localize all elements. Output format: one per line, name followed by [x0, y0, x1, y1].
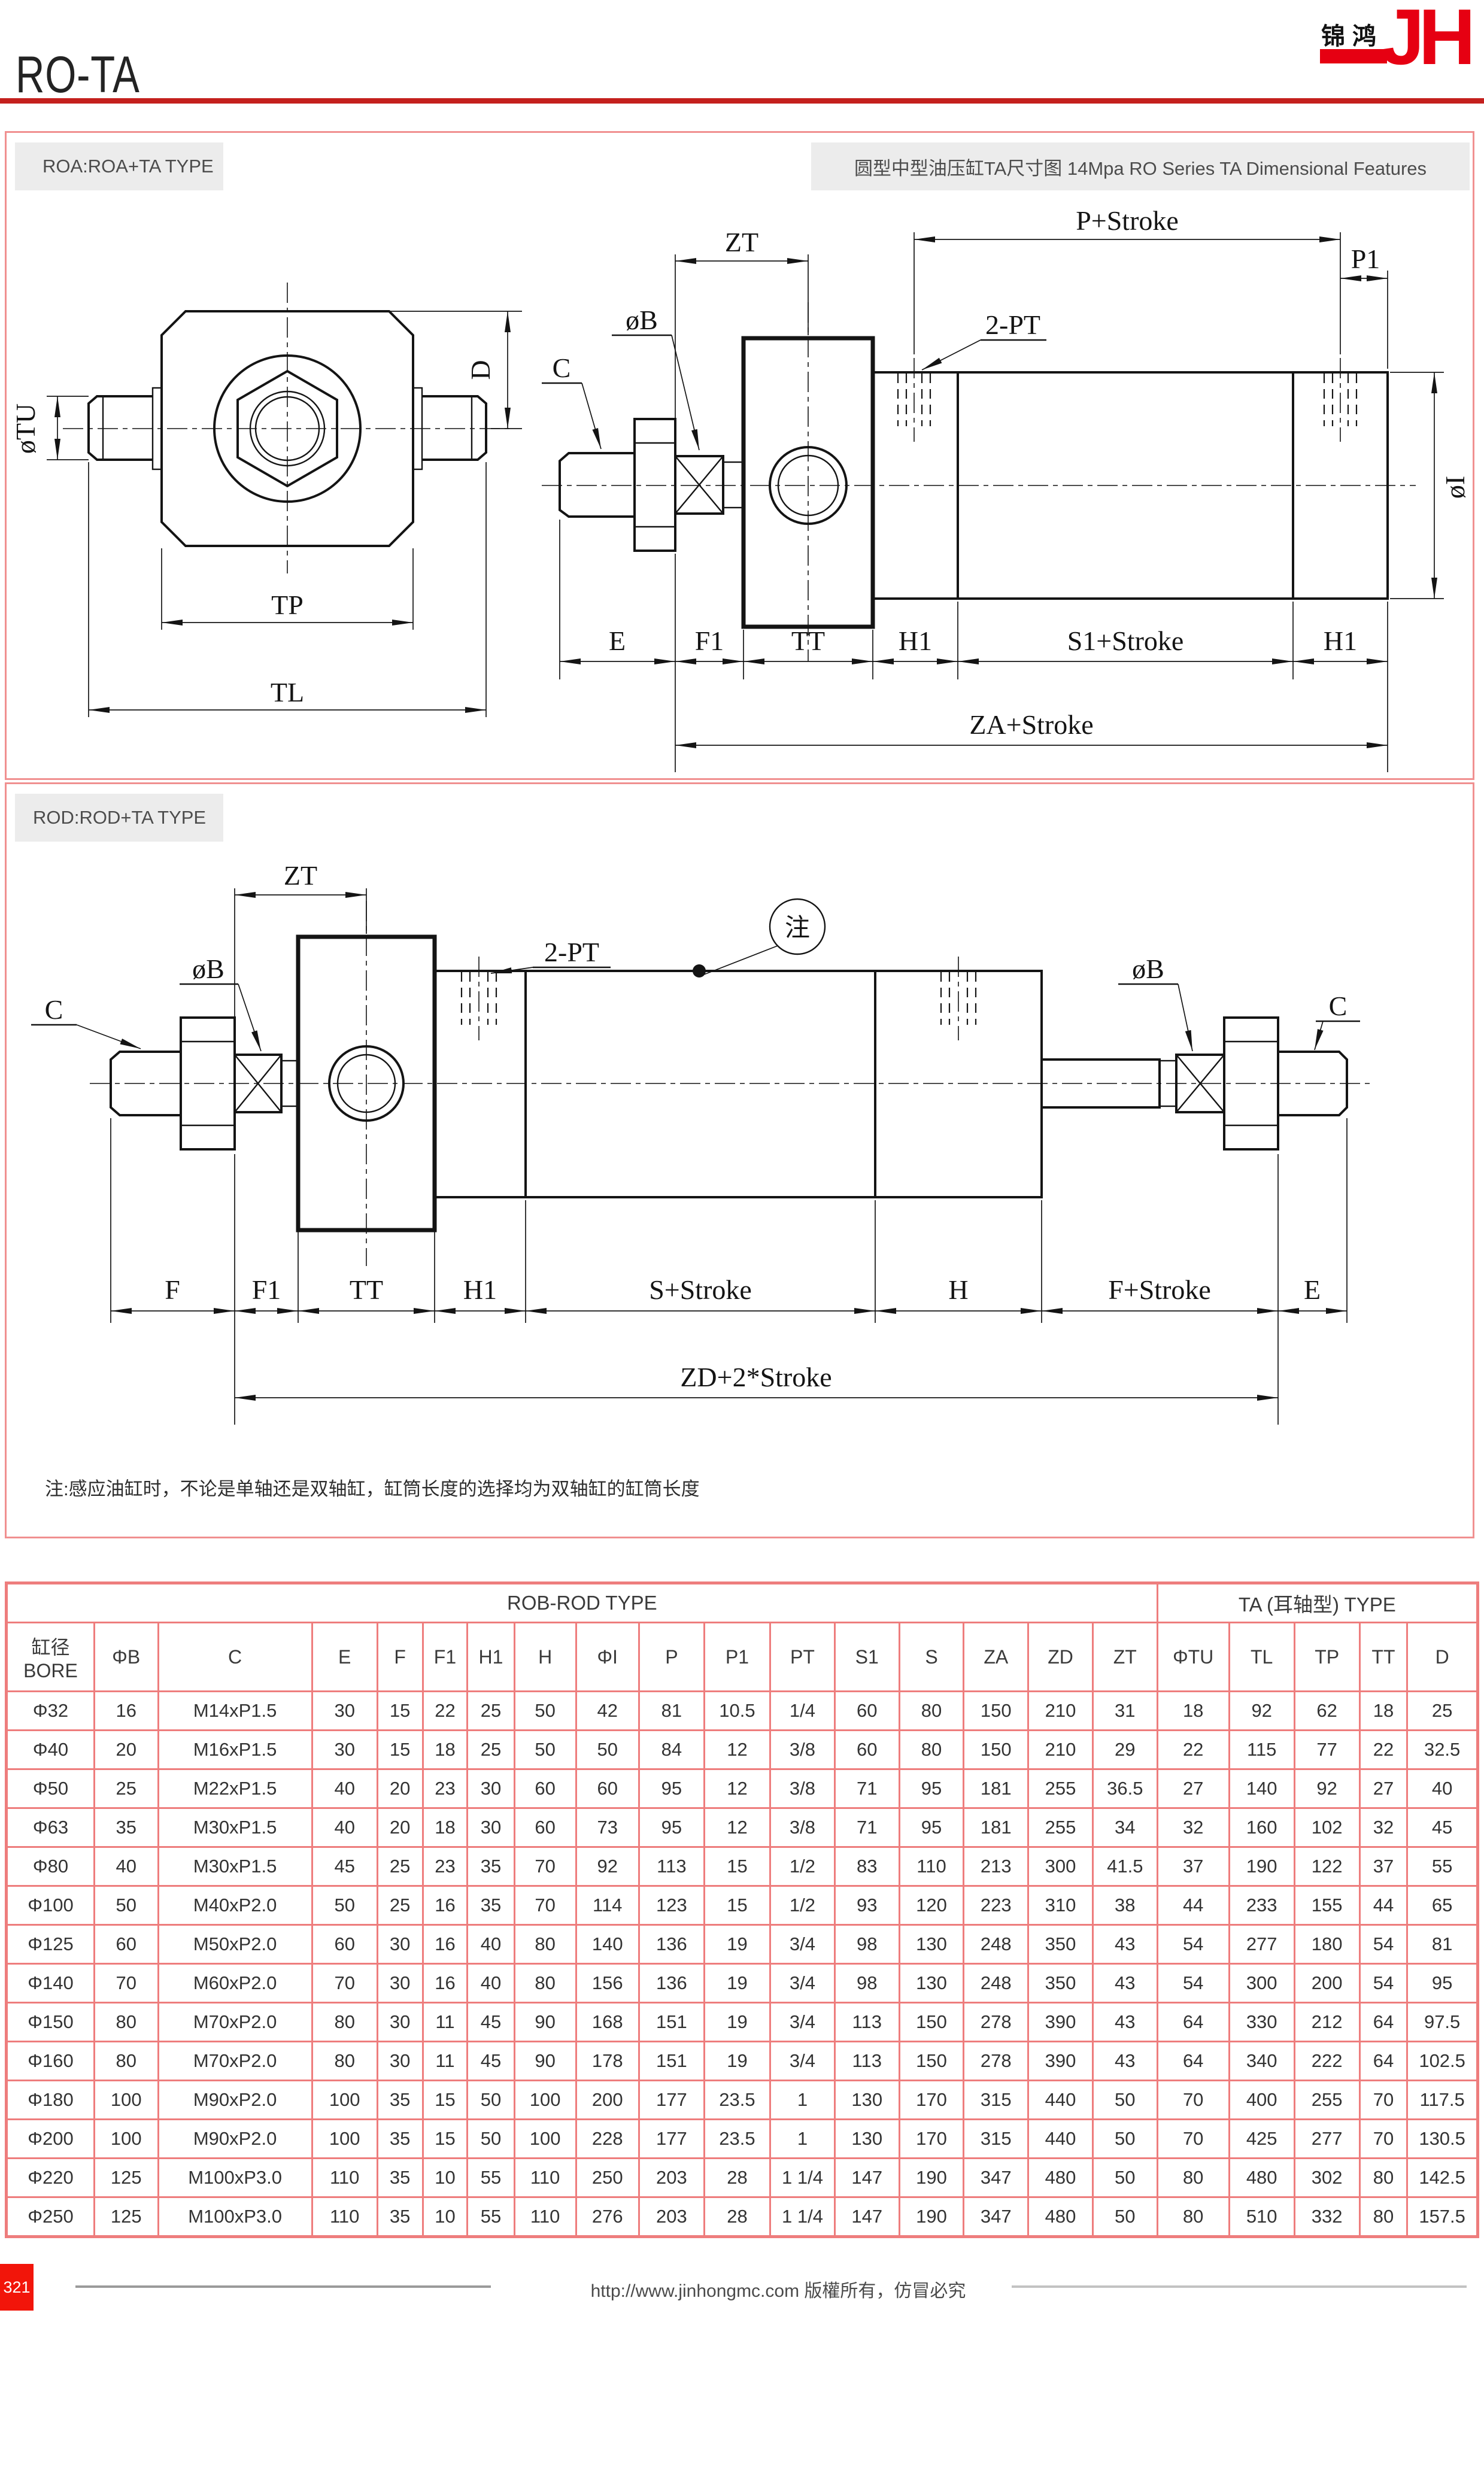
bore-cell: Φ180 [7, 2081, 95, 2120]
table-cell: 203 [639, 2159, 704, 2197]
table-cell: 480 [1028, 2197, 1093, 2237]
table-cell: 35 [468, 1847, 514, 1886]
table-cell: 1 [770, 2120, 835, 2159]
bore-cell: Φ40 [7, 1731, 95, 1769]
table-cell: 35 [377, 2120, 423, 2159]
bore-cell: Φ63 [7, 1808, 95, 1847]
table-cell: 142.5 [1407, 2159, 1478, 2197]
table-row: Φ10050M40xP2.05025163570114123151/293120… [7, 1886, 1478, 1925]
table-cell: 210 [1028, 1731, 1093, 1769]
table-cell: 1 1/4 [770, 2159, 835, 2197]
col-header: ZD [1028, 1623, 1093, 1692]
table-cell: 23 [423, 1769, 468, 1808]
table-cell: 40 [468, 1964, 514, 2003]
table-column-header-row: 缸径 BORE ΦB C E F F1 H1 H ΦI P P1 PT S1 S [7, 1623, 1478, 1692]
table-row: Φ220125M100xP3.0110351055110250203281 1/… [7, 2159, 1478, 2197]
table-cell: 45 [468, 2003, 514, 2042]
table-cell: 100 [94, 2081, 158, 2120]
table-cell: 1 1/4 [770, 2197, 835, 2237]
table-cell: 64 [1157, 2042, 1229, 2081]
table-cell: 277 [1229, 1925, 1294, 1964]
table-cell: 25 [377, 1886, 423, 1925]
bore-cell: Φ160 [7, 2042, 95, 2081]
table-cell: 43 [1092, 2003, 1157, 2042]
table-cell: 151 [639, 2042, 704, 2081]
table-cell: 11 [423, 2003, 468, 2042]
table-cell: 95 [1407, 1964, 1478, 2003]
table-cell: 3/8 [770, 1808, 835, 1847]
table-cell: 35 [377, 2081, 423, 2120]
table-cell: 150 [899, 2003, 964, 2042]
table-cell: 70 [312, 1964, 377, 2003]
table-cell: 64 [1359, 2003, 1407, 2042]
bore-cell: Φ50 [7, 1769, 95, 1808]
table-cell: 50 [1092, 2081, 1157, 2120]
table-cell: 84 [639, 1731, 704, 1769]
col-header: C [158, 1623, 312, 1692]
group-header-ta: TA (耳轴型) TYPE [1157, 1583, 1477, 1623]
table-cell: 43 [1092, 2042, 1157, 2081]
page-title: RO-TA [16, 45, 140, 105]
table-cell: 510 [1229, 2197, 1294, 2237]
col-header: ΦB [94, 1623, 158, 1692]
table-cell: 40 [1407, 1769, 1478, 1808]
table-cell: 310 [1028, 1886, 1093, 1925]
table-cell: 3/4 [770, 2003, 835, 2042]
table-cell: 40 [94, 1847, 158, 1886]
table-cell: 40 [312, 1808, 377, 1847]
table-cell: M70xP2.0 [158, 2003, 312, 2042]
table-cell: 50 [576, 1731, 639, 1769]
bore-cell: Φ140 [7, 1964, 95, 2003]
table-cell: 71 [834, 1808, 899, 1847]
table-cell: 35 [468, 1886, 514, 1925]
table-cell: 80 [1157, 2159, 1229, 2197]
col-header: P1 [704, 1623, 770, 1692]
table-cell: 65 [1407, 1886, 1478, 1925]
footer-divider-left [75, 2285, 491, 2288]
table-cell: M90xP2.0 [158, 2081, 312, 2120]
table-cell: 170 [899, 2120, 964, 2159]
table-cell: 248 [964, 1925, 1028, 1964]
table-cell: 80 [514, 1925, 576, 1964]
table-row: Φ15080M70xP2.08030114590168151193/411315… [7, 2003, 1478, 2042]
table-cell: 250 [576, 2159, 639, 2197]
table-cell: 117.5 [1407, 2081, 1478, 2120]
table-cell: 400 [1229, 2081, 1294, 2120]
table-cell: 480 [1028, 2159, 1093, 2197]
table-cell: 3/8 [770, 1769, 835, 1808]
table-cell: 10 [423, 2197, 468, 2237]
table-row: Φ5025M22xP1.540202330606095123/871951812… [7, 1769, 1478, 1808]
table-cell: 150 [964, 1731, 1028, 1769]
table-cell: 12 [704, 1769, 770, 1808]
col-header: ZA [964, 1623, 1028, 1692]
table-row: Φ6335M30xP1.540201830607395123/871951812… [7, 1808, 1478, 1847]
table-row: Φ16080M70xP2.08030114590178151193/411315… [7, 2042, 1478, 2081]
table-cell: 44 [1157, 1886, 1229, 1925]
table-cell: 95 [639, 1808, 704, 1847]
table-cell: 125 [94, 2159, 158, 2197]
table-cell: 50 [1092, 2197, 1157, 2237]
table-cell: 15 [423, 2120, 468, 2159]
table-cell: 100 [94, 2120, 158, 2159]
table-cell: 300 [1229, 1964, 1294, 2003]
section-rod-note: 注:感应油缸时，不论是单轴还是双轴缸，缸筒长度的选择均为双轴缸的缸筒长度 [45, 1474, 700, 1501]
col-header: ΦI [576, 1623, 639, 1692]
table-cell: 30 [377, 1925, 423, 1964]
table-cell: 151 [639, 2003, 704, 2042]
table-cell: 390 [1028, 2042, 1093, 2081]
table-cell: 43 [1092, 1925, 1157, 1964]
table-cell: 30 [377, 2042, 423, 2081]
table-cell: 22 [423, 1692, 468, 1731]
table-cell: 25 [94, 1769, 158, 1808]
table-cell: 40 [468, 1925, 514, 1964]
section-roa-label: ROA:ROA+TA TYPE [15, 142, 223, 190]
table-cell: 255 [1028, 1769, 1093, 1808]
table-cell: 130 [834, 2120, 899, 2159]
table-cell: 157.5 [1407, 2197, 1478, 2237]
table-cell: 80 [1157, 2197, 1229, 2237]
table-cell: 35 [377, 2197, 423, 2237]
table-cell: 190 [1229, 1847, 1294, 1886]
brand-logo-bar [1320, 49, 1387, 63]
table-cell: 113 [834, 2003, 899, 2042]
table-cell: 43 [1092, 1964, 1157, 2003]
table-cell: 60 [834, 1692, 899, 1731]
table-cell: 90 [514, 2042, 576, 2081]
table-cell: 80 [312, 2003, 377, 2042]
page-number-badge: 321 [0, 2264, 34, 2311]
col-header: F1 [423, 1623, 468, 1692]
col-header: D [1407, 1623, 1478, 1692]
table-cell: 113 [834, 2042, 899, 2081]
table-cell: 15 [423, 2081, 468, 2120]
table-cell: 110 [312, 2159, 377, 2197]
table-cell: 147 [834, 2197, 899, 2237]
col-header-bore-en: BORE [8, 1660, 93, 1682]
table-cell: 15 [704, 1847, 770, 1886]
table-cell: 480 [1229, 2159, 1294, 2197]
table-cell: 16 [94, 1692, 158, 1731]
table-cell: 20 [377, 1808, 423, 1847]
table-cell: 25 [468, 1731, 514, 1769]
table-cell: 300 [1028, 1847, 1093, 1886]
table-cell: 70 [1359, 2081, 1407, 2120]
table-cell: 16 [423, 1886, 468, 1925]
table-cell: 222 [1294, 2042, 1359, 2081]
table-cell: 97.5 [1407, 2003, 1478, 2042]
table-cell: 45 [1407, 1808, 1478, 1847]
table-cell: 160 [1229, 1808, 1294, 1847]
table-cell: 30 [377, 1964, 423, 2003]
table-cell: 210 [1028, 1692, 1093, 1731]
table-cell: 80 [899, 1692, 964, 1731]
table-cell: 32 [1157, 1808, 1229, 1847]
table-cell: 440 [1028, 2081, 1093, 2120]
col-header: E [312, 1623, 377, 1692]
table-cell: 110 [899, 1847, 964, 1886]
table-cell: 12 [704, 1808, 770, 1847]
section-rod-label: ROD:ROD+TA TYPE [15, 794, 223, 842]
table-cell: 35 [94, 1808, 158, 1847]
table-cell: 181 [964, 1808, 1028, 1847]
table-cell: 60 [312, 1925, 377, 1964]
table-row: Φ180100M90xP2.010035155010020017723.5113… [7, 2081, 1478, 2120]
bore-cell: Φ250 [7, 2197, 95, 2237]
table-cell: 27 [1157, 1769, 1229, 1808]
table-cell: 1/2 [770, 1886, 835, 1925]
col-header: P [639, 1623, 704, 1692]
table-cell: 54 [1359, 1925, 1407, 1964]
table-cell: 115 [1229, 1731, 1294, 1769]
table-cell: 81 [1407, 1925, 1478, 1964]
table-row: Φ14070M60xP2.07030164080156136193/498130… [7, 1964, 1478, 2003]
table-cell: 80 [94, 2003, 158, 2042]
table-cell: 3/8 [770, 1731, 835, 1769]
table-cell: 34 [1092, 1808, 1157, 1847]
table-cell: 30 [468, 1808, 514, 1847]
table-cell: 1 [770, 2081, 835, 2120]
section-roa-panel: ROA:ROA+TA TYPE 圆型中型油压缸TA尺寸图 14Mpa RO Se… [5, 131, 1474, 780]
table-cell: 150 [899, 2042, 964, 2081]
table-cell: 23 [423, 1847, 468, 1886]
table-cell: 3/4 [770, 1925, 835, 1964]
table-cell: 140 [576, 1925, 639, 1964]
table-cell: 60 [576, 1769, 639, 1808]
brand-logo-cn-text: 锦鸿 [1321, 17, 1383, 51]
table-cell: 55 [468, 2159, 514, 2197]
table-cell: 60 [94, 1925, 158, 1964]
table-cell: 25 [468, 1692, 514, 1731]
table-cell: 80 [1359, 2197, 1407, 2237]
table-row: Φ3216M14xP1.53015222550428110.51/4608015… [7, 1692, 1478, 1731]
table-cell: 178 [576, 2042, 639, 2081]
col-header: S1 [834, 1623, 899, 1692]
table-cell: 278 [964, 2042, 1028, 2081]
table-cell: 62 [1294, 1692, 1359, 1731]
section-roa-subtitle: 圆型中型油压缸TA尺寸图 14Mpa RO Series TA Dimensio… [811, 142, 1470, 190]
table-cell: 213 [964, 1847, 1028, 1886]
table-cell: 37 [1359, 1847, 1407, 1886]
table-cell: 54 [1157, 1964, 1229, 2003]
table-cell: 16 [423, 1925, 468, 1964]
table-cell: 25 [377, 1847, 423, 1886]
table-cell: 98 [834, 1925, 899, 1964]
table-cell: 45 [312, 1847, 377, 1886]
table-cell: 248 [964, 1964, 1028, 2003]
table-cell: 60 [834, 1731, 899, 1769]
footer-copyright: http://www.jinhongmc.com 版權所有，仿冒必究 [569, 2276, 988, 2302]
col-header: PT [770, 1623, 835, 1692]
table-cell: 54 [1359, 1964, 1407, 2003]
table-row: Φ4020M16xP1.530151825505084123/860801502… [7, 1731, 1478, 1769]
table-cell: 340 [1229, 2042, 1294, 2081]
table-cell: 277 [1294, 2120, 1359, 2159]
table-cell: 80 [94, 2042, 158, 2081]
table-cell: 22 [1359, 1731, 1407, 1769]
table-cell: 73 [576, 1808, 639, 1847]
col-header: ΦTU [1157, 1623, 1229, 1692]
table-cell: 77 [1294, 1731, 1359, 1769]
table-cell: M16xP1.5 [158, 1731, 312, 1769]
table-cell: 110 [514, 2159, 576, 2197]
bore-cell: Φ80 [7, 1847, 95, 1886]
table-cell: 81 [639, 1692, 704, 1731]
table-cell: 32 [1359, 1808, 1407, 1847]
table-cell: 177 [639, 2120, 704, 2159]
table-cell: 100 [514, 2120, 576, 2159]
col-header-bore-zh: 缸径 [8, 1632, 93, 1660]
table-cell: 15 [377, 1731, 423, 1769]
table-cell: 16 [423, 1964, 468, 2003]
table-cell: 332 [1294, 2197, 1359, 2237]
col-header: H1 [468, 1623, 514, 1692]
table-cell: 18 [423, 1731, 468, 1769]
table-row: Φ12560M50xP2.06030164080140136193/498130… [7, 1925, 1478, 1964]
table-cell: 64 [1359, 2042, 1407, 2081]
table-cell: 80 [514, 1964, 576, 2003]
table-cell: 30 [468, 1769, 514, 1808]
table-cell: 50 [312, 1886, 377, 1925]
table-cell: 425 [1229, 2120, 1294, 2159]
table-cell: 55 [468, 2197, 514, 2237]
table-cell: 50 [468, 2120, 514, 2159]
table-cell: 177 [639, 2081, 704, 2120]
brand-logo-jh-text: JH [1380, 0, 1470, 77]
table-cell: 130 [899, 1964, 964, 2003]
table-cell: 25 [1407, 1692, 1478, 1731]
dimension-table: ROB-ROD TYPE TA (耳轴型) TYPE 缸径 BORE ΦB C … [5, 1581, 1479, 2238]
table-cell: 123 [639, 1886, 704, 1925]
table-cell: 45 [468, 2042, 514, 2081]
table-cell: 122 [1294, 1847, 1359, 1886]
table-cell: M90xP2.0 [158, 2120, 312, 2159]
table-body: Φ3216M14xP1.53015222550428110.51/4608015… [7, 1692, 1478, 2237]
col-header: TL [1229, 1623, 1294, 1692]
table-cell: 92 [1229, 1692, 1294, 1731]
table-cell: M70xP2.0 [158, 2042, 312, 2081]
table-cell: 136 [639, 1925, 704, 1964]
table-cell: 29 [1092, 1731, 1157, 1769]
table-cell: 15 [377, 1692, 423, 1731]
table-cell: 100 [312, 2081, 377, 2120]
table-cell: 19 [704, 2003, 770, 2042]
table-cell: 100 [312, 2120, 377, 2159]
table-cell: 22 [1157, 1731, 1229, 1769]
table-cell: 38 [1092, 1886, 1157, 1925]
bore-cell: Φ200 [7, 2120, 95, 2159]
table-cell: 18 [1157, 1692, 1229, 1731]
table-cell: 20 [377, 1769, 423, 1808]
bore-cell: Φ150 [7, 2003, 95, 2042]
table-cell: 114 [576, 1886, 639, 1925]
table-cell: 95 [899, 1808, 964, 1847]
table-cell: 41.5 [1092, 1847, 1157, 1886]
table-cell: 71 [834, 1769, 899, 1808]
table-cell: 23.5 [704, 2081, 770, 2120]
table-cell: 27 [1359, 1769, 1407, 1808]
table-cell: 315 [964, 2120, 1028, 2159]
table-cell: 170 [899, 2081, 964, 2120]
table-cell: 32.5 [1407, 1731, 1478, 1769]
table-cell: 19 [704, 2042, 770, 2081]
table-row: Φ200100M90xP2.010035155010022817723.5113… [7, 2120, 1478, 2159]
table-cell: 60 [514, 1808, 576, 1847]
table-cell: 302 [1294, 2159, 1359, 2197]
table-cell: 11 [423, 2042, 468, 2081]
table-cell: 31 [1092, 1692, 1157, 1731]
table-cell: 147 [834, 2159, 899, 2197]
table-cell: 130 [899, 1925, 964, 1964]
table-cell: 18 [1359, 1692, 1407, 1731]
table-cell: 80 [312, 2042, 377, 2081]
table-cell: 350 [1028, 1964, 1093, 2003]
table-cell: 30 [312, 1731, 377, 1769]
table-cell: 37 [1157, 1847, 1229, 1886]
table-cell: 70 [1157, 2081, 1229, 2120]
table-cell: 20 [94, 1731, 158, 1769]
table-cell: 315 [964, 2081, 1028, 2120]
brand-logo: 锦鸿 JH [1319, 6, 1470, 85]
table-cell: 95 [899, 1769, 964, 1808]
table-cell: 390 [1028, 2003, 1093, 2042]
table-cell: M30xP1.5 [158, 1808, 312, 1847]
table-cell: 113 [639, 1847, 704, 1886]
table-cell: 70 [1157, 2120, 1229, 2159]
table-cell: 28 [704, 2159, 770, 2197]
table-cell: 255 [1294, 2081, 1359, 2120]
table-cell: M30xP1.5 [158, 1847, 312, 1886]
col-header: F [377, 1623, 423, 1692]
bore-cell: Φ32 [7, 1692, 95, 1731]
table-cell: 50 [514, 1731, 576, 1769]
table-cell: 70 [514, 1886, 576, 1925]
table-cell: 3/4 [770, 2042, 835, 2081]
table-cell: 30 [312, 1692, 377, 1731]
table-cell: 110 [514, 2197, 576, 2237]
table-cell: 40 [312, 1769, 377, 1808]
table-cell: 350 [1028, 1925, 1093, 1964]
table-cell: M14xP1.5 [158, 1692, 312, 1731]
table-cell: 50 [514, 1692, 576, 1731]
table-cell: 92 [1294, 1769, 1359, 1808]
table-group-header-row: ROB-ROD TYPE TA (耳轴型) TYPE [7, 1583, 1478, 1623]
table-cell: 347 [964, 2159, 1028, 2197]
table-cell: 110 [312, 2197, 377, 2237]
table-cell: 181 [964, 1769, 1028, 1808]
table-cell: 70 [1359, 2120, 1407, 2159]
bore-cell: Φ125 [7, 1925, 95, 1964]
table-cell: 28 [704, 2197, 770, 2237]
table-cell: M60xP2.0 [158, 1964, 312, 2003]
table-cell: 36.5 [1092, 1769, 1157, 1808]
table-cell: M22xP1.5 [158, 1769, 312, 1808]
table-cell: 130.5 [1407, 2120, 1478, 2159]
table-cell: 190 [899, 2197, 964, 2237]
col-header-bore: 缸径 BORE [7, 1623, 95, 1692]
table-cell: 1/2 [770, 1847, 835, 1886]
group-header-rob-rod: ROB-ROD TYPE [7, 1583, 1158, 1623]
table-cell: 15 [704, 1886, 770, 1925]
table-cell: M40xP2.0 [158, 1886, 312, 1925]
table-row: Φ250125M100xP3.0110351055110276203281 1/… [7, 2197, 1478, 2237]
table-cell: 50 [1092, 2120, 1157, 2159]
table-cell: 180 [1294, 1925, 1359, 1964]
table-cell: 50 [1092, 2159, 1157, 2197]
table-cell: 136 [639, 1964, 704, 2003]
